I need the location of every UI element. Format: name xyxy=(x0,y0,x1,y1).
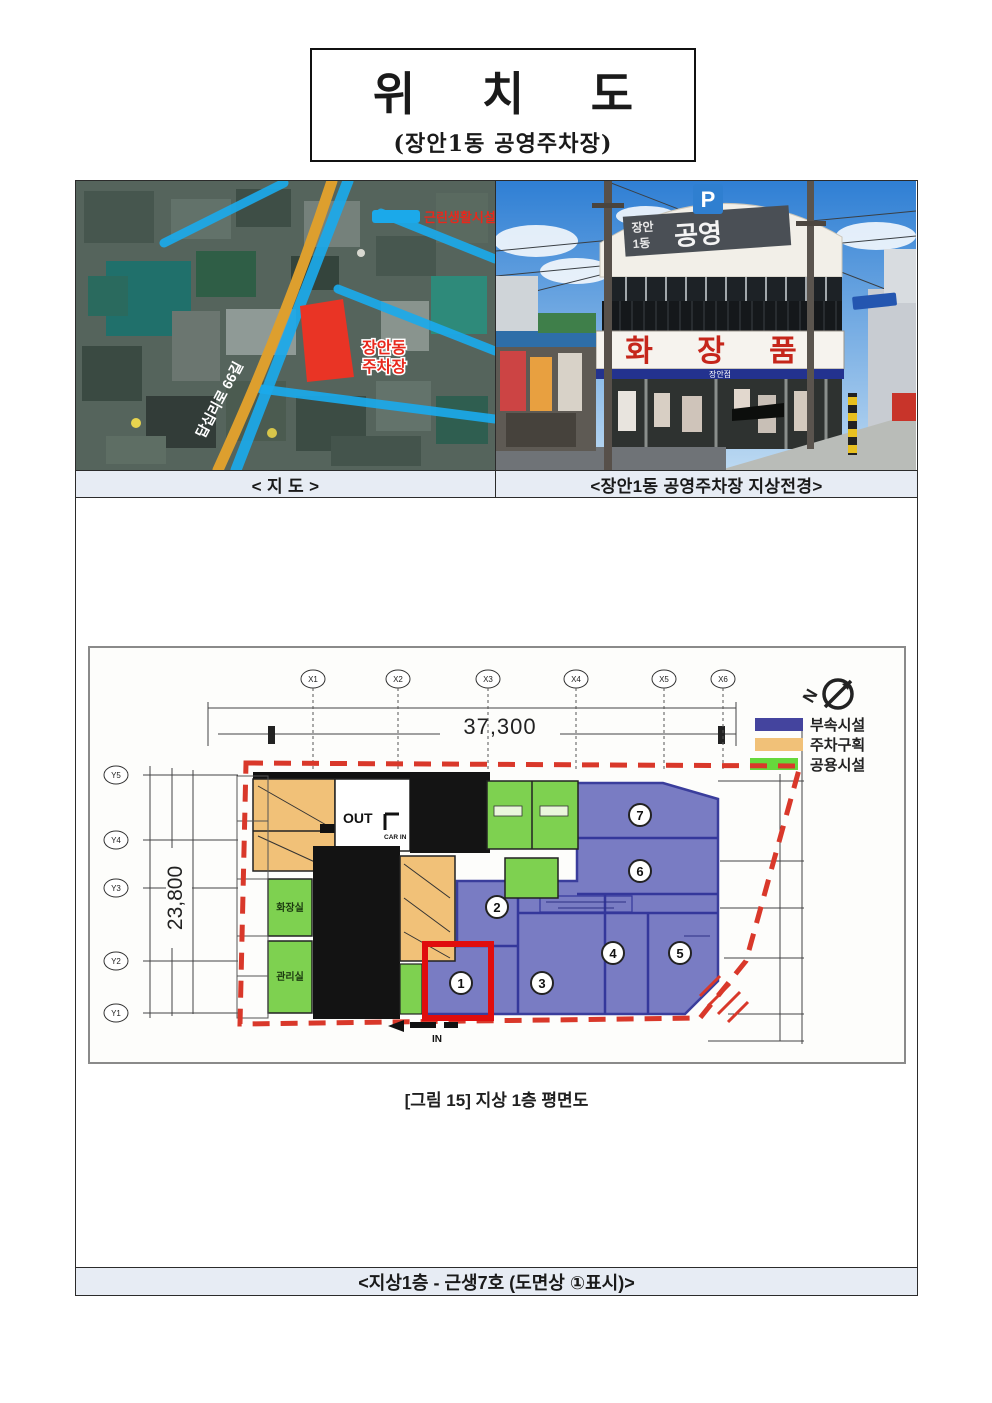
store-name-text: 장안점 xyxy=(709,369,731,379)
grid-label-y5: Y5 xyxy=(111,771,121,780)
core-center xyxy=(313,846,400,1019)
legend-swatch-annex xyxy=(755,718,803,731)
map-caption: < 지 도 > xyxy=(75,471,496,498)
top-sign-line1: 장안 xyxy=(631,219,654,236)
top-sign-main: 공영 xyxy=(673,218,723,251)
out-room: OUT CAR IN xyxy=(335,779,410,851)
legend-label-parking: 주차구획 xyxy=(810,737,865,754)
map-parking-label-1: 장안동 xyxy=(362,339,406,357)
legend-label-annex: 부속시설 xyxy=(810,717,865,734)
street-photo-image: 장안 1동 공영 P xyxy=(496,180,918,471)
media-table: 장안동 주차장 근린생활시설 답십리로 66길 xyxy=(75,180,918,1296)
office-label: 관리실 xyxy=(276,970,304,983)
floor-plan-figure: 37,300 23,800 xyxy=(88,646,906,1064)
legend-label-common: 공용시설 xyxy=(810,757,865,774)
grid-label-y1: Y1 xyxy=(111,1009,121,1018)
figure-caption: [그림 15] 지상 1층 평면도 xyxy=(76,1086,917,1111)
unit-5: 5 xyxy=(676,946,683,961)
map-parking-label-2: 주차장 xyxy=(362,358,406,376)
unit-6: 6 xyxy=(636,864,643,879)
bottom-caption: <지상1층 - 근생7호 (도면상 ①표시)> xyxy=(75,1268,918,1296)
in-label: IN xyxy=(432,1034,442,1045)
cosmetics-sign-text: 화 장 품 xyxy=(625,335,814,368)
toilet-label: 화장실 xyxy=(276,901,304,914)
legend-swatch-parking xyxy=(755,738,803,751)
grid-label-x6: X6 xyxy=(718,675,728,684)
unit-4: 4 xyxy=(609,946,617,961)
left-shops xyxy=(496,313,596,451)
red-truck xyxy=(892,393,916,421)
page-title: 위 치 도 xyxy=(312,58,694,124)
grid-label-y3: Y3 xyxy=(111,884,121,893)
grid-label-x1: X1 xyxy=(308,675,318,684)
grid-label-y4: Y4 xyxy=(111,836,121,845)
floor-plan-cell: 37,300 23,800 xyxy=(75,498,918,1268)
caption-row: < 지 도 > <장안1동 공영주차장 지상전경> xyxy=(75,471,918,498)
page-subtitle: (장안1동 공영주차장) xyxy=(312,126,694,158)
unit-1: 1 xyxy=(457,976,464,991)
grid-label-x5: X5 xyxy=(659,675,669,684)
title-box: 위 치 도 (장안1동 공영주차장) xyxy=(310,48,696,162)
satellite-map-graphic: 장안동 주차장 근린생활시설 답십리로 66길 xyxy=(76,181,495,470)
dim-height-text: 23,800 xyxy=(164,866,187,930)
top-sign-line2: 1동 xyxy=(632,236,651,251)
map-legend-bar xyxy=(372,210,420,223)
unit-7: 7 xyxy=(636,808,643,823)
unit-2: 2 xyxy=(493,900,500,915)
document-page: 위 치 도 (장안1동 공영주차장) xyxy=(0,0,992,1403)
grid-label-x4: X4 xyxy=(571,675,581,684)
grid-label-y2: Y2 xyxy=(111,957,121,966)
out-label: OUT xyxy=(343,810,373,826)
parking-p-letter: P xyxy=(701,187,716,212)
dim-tick-left xyxy=(268,726,275,744)
grid-label-x2: X2 xyxy=(393,675,403,684)
photo-caption: <장안1동 공영주차장 지상전경> xyxy=(496,471,918,498)
unit-3: 3 xyxy=(538,976,545,991)
car-in-label: CAR IN xyxy=(384,834,407,841)
image-row: 장안동 주차장 근린생활시설 답십리로 66길 xyxy=(75,180,918,471)
street-photo-graphic: 장안 1동 공영 P xyxy=(496,181,916,470)
dim-width-text: 37,300 xyxy=(463,714,536,739)
floor-plan-graphic: 37,300 23,800 xyxy=(88,646,906,1064)
dim-tick-right xyxy=(718,726,725,744)
satellite-map-image: 장안동 주차장 근린생활시설 답십리로 66길 xyxy=(75,180,496,471)
grid-label-x3: X3 xyxy=(483,675,493,684)
map-facility-label: 근린생활시설 xyxy=(424,210,495,225)
core-top xyxy=(410,773,490,853)
